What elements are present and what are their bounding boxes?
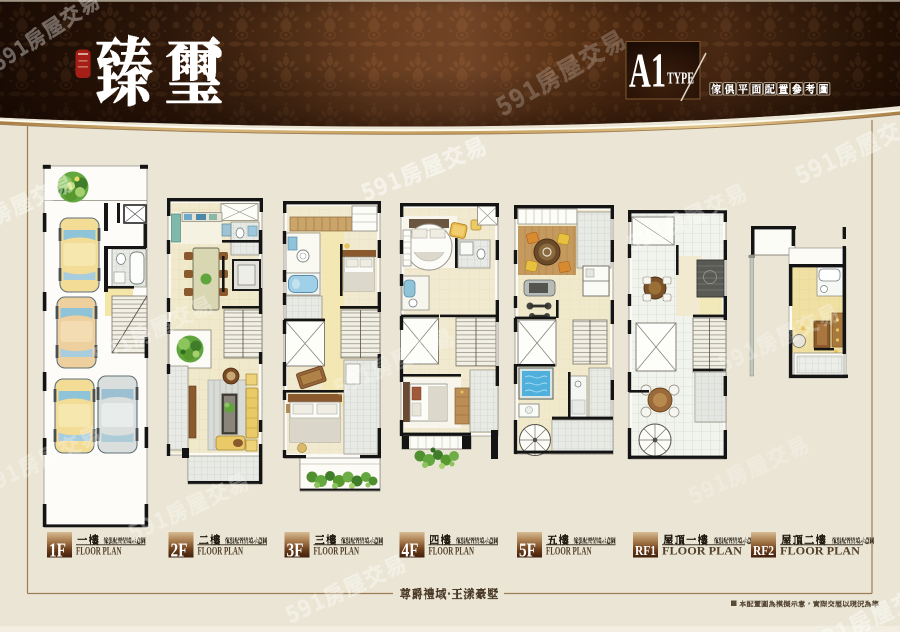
svg-text:5F: 5F — [519, 539, 536, 561]
svg-text:FLOOR PLAN: FLOOR PLAN — [314, 546, 360, 558]
svg-text:FLOOR PLAN: FLOOR PLAN — [76, 546, 122, 558]
svg-text:FLOOR PLAN: FLOOR PLAN — [546, 546, 592, 558]
svg-text:A1: A1 — [629, 43, 666, 98]
svg-text:FLOOR PLAN: FLOOR PLAN — [198, 546, 244, 558]
svg-text:2F: 2F — [171, 539, 188, 561]
svg-text:1F: 1F — [49, 539, 66, 561]
svg-text:FLOOR PLAN: FLOOR PLAN — [662, 546, 743, 558]
svg-text:RF1: RF1 — [635, 544, 656, 559]
svg-text:4F: 4F — [402, 539, 419, 561]
svg-text:3F: 3F — [287, 539, 304, 561]
svg-text:FLOOR PLAN: FLOOR PLAN — [780, 546, 861, 558]
svg-text:FLOOR PLAN: FLOOR PLAN — [429, 546, 475, 558]
svg-text:RF2: RF2 — [753, 544, 774, 559]
